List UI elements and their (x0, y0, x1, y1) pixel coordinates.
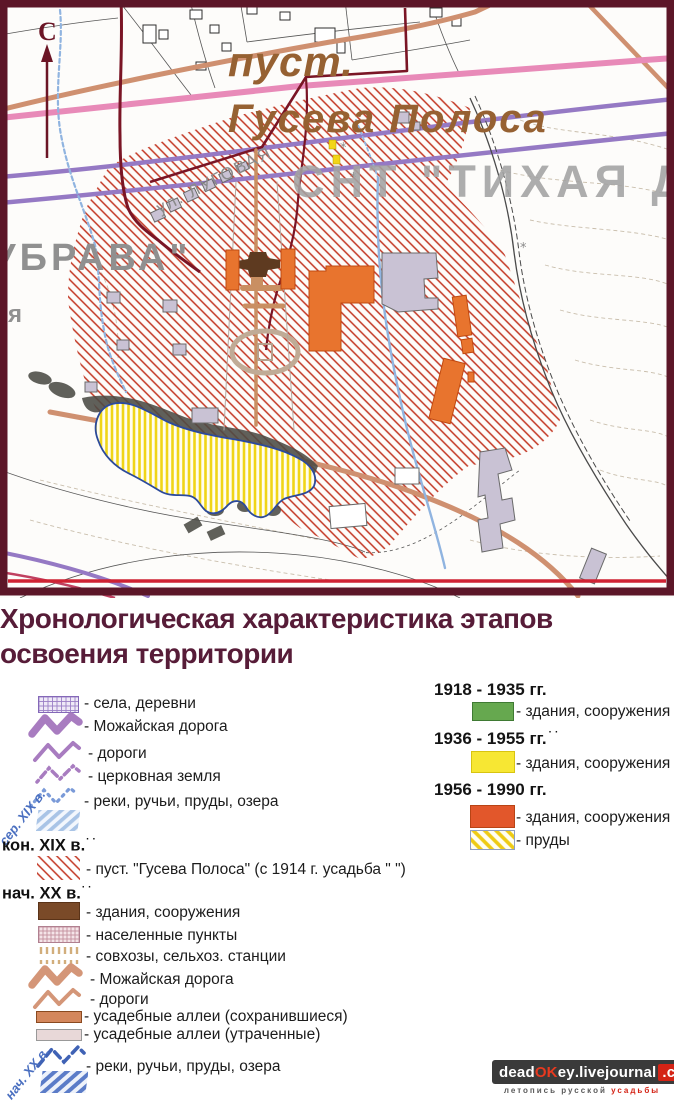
svg-text:*: * (340, 141, 347, 156)
legend-villages: - села, деревни (84, 695, 196, 713)
legend-alleys-preserved: - усадебные аллеи (сохранившиеся) (84, 1008, 348, 1026)
legend-era-late19: кон. XIX в.·· (2, 836, 98, 856)
swatch-orange-buildings (470, 805, 515, 828)
legend-pust-item: - пуст. "Гусева Полоса" (с 1914 г. усадь… (86, 861, 406, 879)
north-label: С (38, 17, 57, 46)
swatch-pust-hatch (37, 856, 80, 880)
swatch-settlements (38, 926, 80, 943)
swatch-mozhayskaya-purple (28, 711, 84, 742)
north-arrow: С (38, 17, 57, 158)
legend-roads-19: - дороги (88, 745, 147, 763)
legend-period3-ponds: - пруды (516, 832, 570, 850)
title-line1: Хронологическая характеристика этапов (0, 601, 674, 636)
map-canvas: *** С пуст. Гусева Полоса СНТ "ТИХАЯ Д У… (0, 0, 674, 598)
label-ya-fragment: я (7, 301, 22, 328)
label-ubrava: УБРАВА" (0, 237, 191, 279)
swatch-rivers-20-fill (40, 1070, 88, 1094)
swatch-green-buildings (472, 702, 514, 721)
swatch-roads-tan (32, 986, 82, 1013)
historical-map: *** С пуст. Гусева Полоса СНТ "ТИХАЯ Д У… (0, 0, 674, 598)
legend-church-land: - церковная земля (88, 768, 221, 786)
label-snt-tihaya: СНТ "ТИХАЯ Д (292, 156, 674, 207)
legend-rivers-20: - реки, ручьи, пруды, озера (86, 1058, 281, 1076)
early20-footnote-dots: ·· (82, 882, 95, 893)
legend-era-early20: нач. XX в.·· (2, 884, 93, 904)
legend-settlements: - населенные пункты (86, 927, 237, 945)
wm-caption-right: усадьбы (611, 1086, 660, 1095)
legend-sovkhoz: - совхозы, сельхоз. станции (86, 948, 286, 966)
swatch-alleys-preserved (36, 1011, 82, 1023)
svg-text:*: * (520, 241, 527, 256)
legend-period1-buildings: - здания, сооружения (516, 703, 670, 721)
wm-com: .com (658, 1064, 674, 1081)
wm-caption-left: летопись русской (504, 1086, 607, 1095)
watermark-logo: deadOKey.livejournal.com (492, 1060, 674, 1084)
legend-buildings-20: - здания, сооружения (86, 904, 240, 922)
wm-dead: dead (499, 1064, 535, 1081)
page-title: Хронологическая характеристика этапов ос… (0, 601, 674, 671)
swatch-buildings-brown (38, 902, 80, 920)
legend-roads-20: - дороги (90, 991, 149, 1009)
legend-period-1956-1990: 1956 - 1990 гг. (434, 780, 547, 800)
swatch-rivers-19-fill (36, 809, 80, 832)
legend-period2-buildings: - здания, сооружения (516, 755, 670, 773)
wm-ey: ey (558, 1064, 575, 1081)
swatch-alleys-lost (36, 1029, 82, 1041)
legend-alleys-lost: - усадебные аллеи (утраченные) (84, 1026, 320, 1044)
period2-footnote-dots: ·· (549, 727, 562, 738)
legend-period-1918-1935: 1918 - 1935 гг. (434, 680, 547, 700)
legend-mozhayskaya-19: - Можайская дорога (84, 718, 228, 736)
wm-ok: OK (535, 1064, 558, 1081)
label-guseva-polosa: Гусева Полоса (228, 97, 548, 141)
title-line2: освоения территории (0, 636, 674, 671)
legend-rivers-19: - реки, ручьи, пруды, озера (84, 793, 279, 811)
label-pust: пуст. (228, 38, 354, 85)
wm-livejournal: .livejournal (575, 1064, 657, 1081)
late19-footnote-dots: ·· (86, 834, 99, 845)
watermark-caption: летопись русской усадьбы (494, 1086, 670, 1095)
swatch-ponds (470, 830, 515, 850)
swatch-yellow-buildings (471, 751, 515, 773)
legend-period-1936-1955: 1936 - 1955 гг.·· (434, 729, 559, 749)
legend-mozhayskaya-20: - Можайская дорога (90, 971, 234, 989)
legend-period3-buildings: - здания, сооружения (516, 809, 670, 827)
